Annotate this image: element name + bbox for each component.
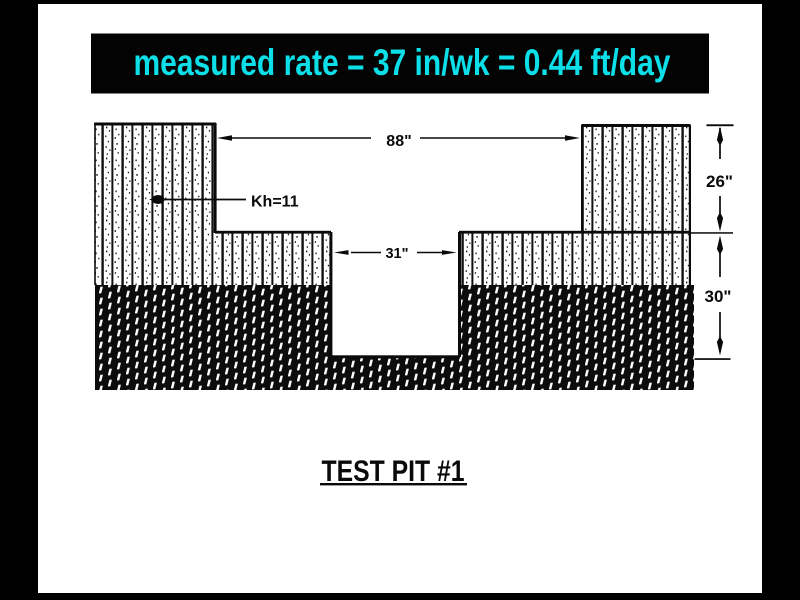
svg-text:26": 26"	[706, 172, 733, 191]
svg-text:30": 30"	[705, 287, 732, 306]
svg-text:88": 88"	[386, 133, 411, 150]
svg-text:31": 31"	[385, 246, 408, 262]
svg-text:measured rate = 37 in/wk = 0.4: measured rate = 37 in/wk = 0.44 ft/day	[134, 42, 671, 83]
svg-text:Kh=11: Kh=11	[251, 194, 299, 211]
